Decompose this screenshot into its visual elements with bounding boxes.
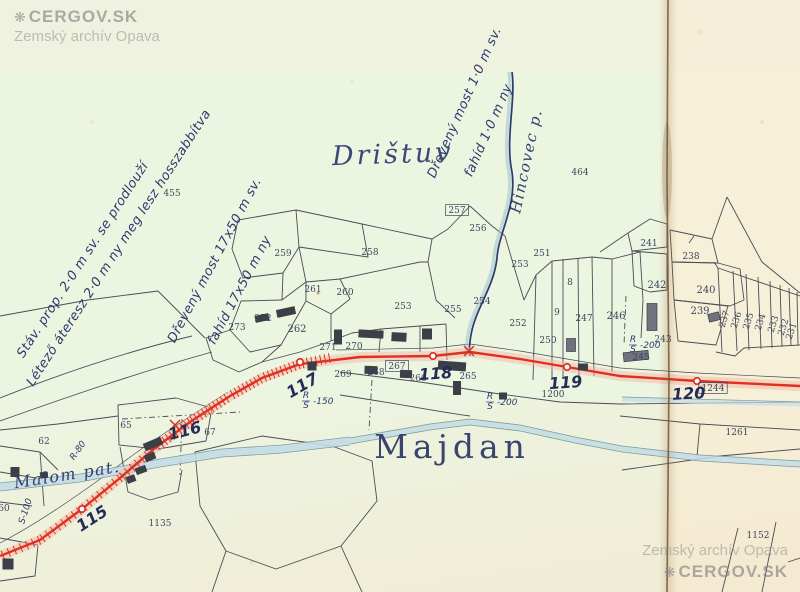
sheet-fold-line [659,0,677,592]
parcel-number: 246 [606,311,625,322]
svg-text:R: R [630,335,636,345]
parcel-number: 253 [511,260,528,270]
svg-text:-150: -150 [313,397,334,407]
parcel-number: 262 [287,324,306,335]
svg-text:S: S [487,402,493,412]
parcel-number: 270 [345,342,362,352]
parcel-number: 252 [509,319,526,329]
parcel-number: 9 [554,308,560,318]
parcel-number: 240 [696,285,715,296]
place-name: Drištuv [330,137,454,172]
place-name: Majdan [374,427,530,466]
parcel-number: 258 [361,248,378,258]
parcel-number: 253 [394,302,411,312]
parcel-number: 265 [459,372,476,382]
svg-text:-200: -200 [640,341,661,351]
parcel-number: 250 [539,336,556,346]
parcel-number: 269 [334,370,351,380]
parcel-number: 464 [571,168,588,178]
parcel-number: 260 [336,288,353,298]
svg-text:R: R [487,392,493,402]
parcel-number: 455 [163,189,180,199]
parcel-number: 251 [533,249,550,259]
parcel-number: 256 [469,224,486,234]
parcel-number: 247 [575,314,592,324]
parcel-number: 261 [304,285,321,295]
parcel-number: 257 [448,206,465,216]
svg-text:S: S [630,345,636,355]
svg-text:S: S [303,401,309,411]
parcel-number: 65 [120,421,132,431]
parcel-number: 239 [690,306,709,317]
parcel-number: 273 [228,323,245,333]
map-canvas: 4554642592582612602572562512532532542552… [0,0,800,592]
parcel-number: 271 [319,343,336,353]
parcel-number: 241 [640,239,657,249]
parcel-number: 60 [0,504,10,514]
parcel-number: 8 [567,278,573,288]
station-number: 120 [672,383,706,404]
parcel-number: 254 [473,297,490,307]
parcel-number: 272 [254,314,271,324]
svg-text:-200: -200 [497,398,518,408]
station-number: 118 [418,363,453,384]
parcel-number: 255 [444,305,461,315]
parcel-number: 268 [367,368,384,378]
parcel-number: 259 [274,249,291,259]
parcel-number: 242 [647,280,666,291]
parcel-number: 62 [38,437,49,447]
scanned-map-page: 4554642592582612602572562512532532542552… [0,0,800,592]
parcel-number: 267 [388,362,405,372]
station-number: 119 [548,372,583,393]
parcel-number: 238 [682,252,699,262]
parcel-number: 1261 [726,428,749,438]
parcel-number: 1135 [149,519,172,529]
parcel-number: 1152 [747,531,770,541]
parcel-number: 67 [204,428,216,438]
